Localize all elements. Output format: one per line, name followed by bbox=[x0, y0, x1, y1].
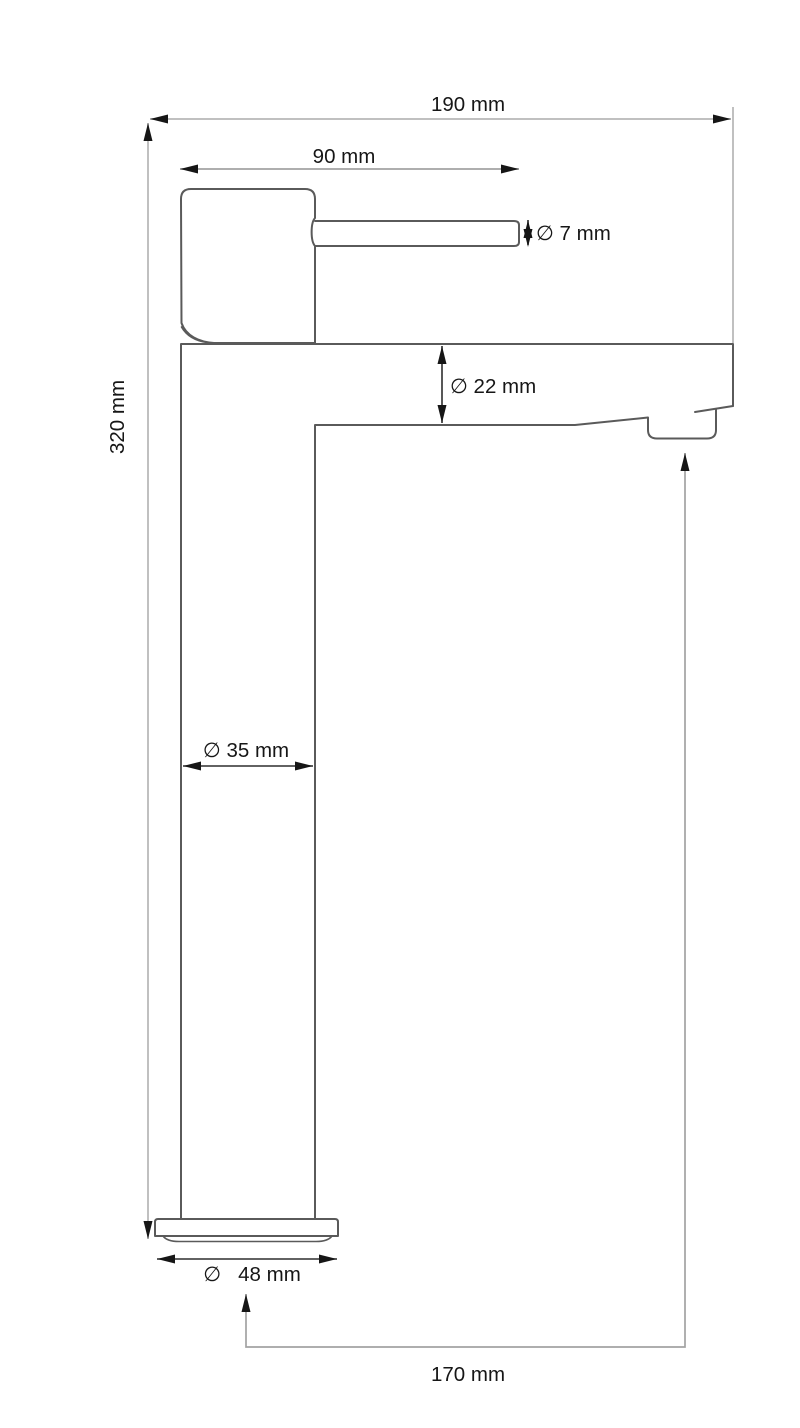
spout-column-outline bbox=[181, 344, 733, 1218]
dim-spout-offset: 170 mm bbox=[246, 453, 685, 1386]
faucet-dimension-drawing: 190 mm 90 mm ∅ 7 mm ∅ 22 mm 320 mm bbox=[0, 0, 800, 1428]
dim-line-spout-offset bbox=[246, 453, 685, 1347]
dim-total-width: 190 mm bbox=[150, 93, 733, 343]
dim-label-total-width: 190 mm bbox=[431, 93, 505, 116]
faucet-outline-group bbox=[155, 189, 733, 1242]
dim-spout-diameter: ∅ 22 mm bbox=[442, 346, 536, 423]
spout-outlet-outline bbox=[315, 410, 716, 1219]
dim-label-spout-diameter: ∅ 22 mm bbox=[450, 375, 536, 398]
dim-total-height: 320 mm bbox=[106, 123, 148, 1239]
dim-label-lever-diameter: ∅ 7 mm bbox=[536, 222, 611, 245]
lever-outline bbox=[315, 221, 519, 246]
dim-base-diameter: ∅ 48 mm bbox=[157, 1259, 337, 1286]
dim-body-diameter: ∅ 35 mm bbox=[183, 739, 313, 766]
dim-label-body-diameter: ∅ 35 mm bbox=[203, 739, 289, 762]
dim-label-total-height: 320 mm bbox=[106, 380, 129, 454]
dim-label-handle-length: 90 mm bbox=[313, 145, 376, 168]
dim-label-base-diameter: ∅ 48 mm bbox=[203, 1263, 301, 1286]
dim-lever-diameter: ∅ 7 mm bbox=[528, 220, 611, 247]
dim-label-spout-offset: 170 mm bbox=[431, 1363, 505, 1386]
dim-handle-length: 90 mm bbox=[180, 145, 519, 169]
dimensions-group: 190 mm 90 mm ∅ 7 mm ∅ 22 mm 320 mm bbox=[106, 93, 733, 1386]
base-plate-outline bbox=[155, 1219, 338, 1236]
handle-body-outline bbox=[181, 189, 315, 343]
spout-tip-slope-line bbox=[695, 406, 733, 412]
dimension-drawing-page: 190 mm 90 mm ∅ 7 mm ∅ 22 mm 320 mm bbox=[0, 0, 800, 1428]
